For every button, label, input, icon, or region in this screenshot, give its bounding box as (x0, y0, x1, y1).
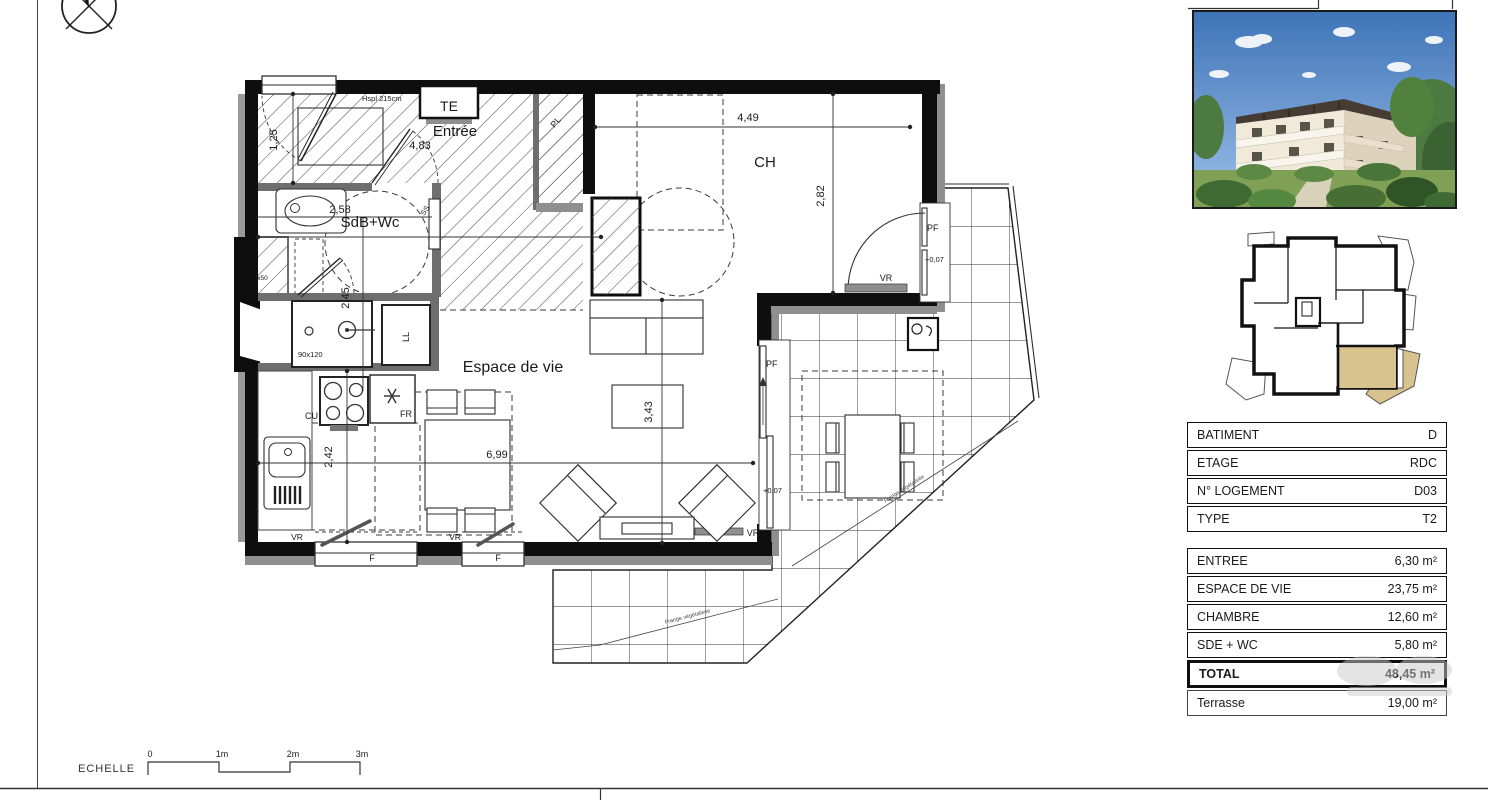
room-label-entrance: Entrée (433, 123, 477, 140)
dim-living-width: 6,99 (486, 449, 507, 461)
sink (264, 437, 310, 509)
dining-set (425, 390, 510, 532)
tap-fixture (908, 318, 938, 350)
pf-label-bedroom: PF (927, 223, 939, 233)
scale-tick-0: 0 (147, 749, 152, 759)
dim-bedroom-depth: 2,82 (815, 185, 827, 206)
vr-label-window1: VR (291, 532, 303, 542)
kitchen (258, 371, 415, 530)
table-row-terrace: Terrasse19,00 m² (1187, 690, 1447, 716)
vr-label-living: VR (747, 528, 760, 538)
dim-entrance-depth: 1,25 (268, 129, 280, 150)
scale-label: ECHELLE (78, 763, 135, 775)
shower-size-label: 90x120 (298, 350, 323, 359)
dim-bathroom-depth: 2,45 (340, 287, 352, 308)
dim-living-depth: 3,43 (643, 401, 655, 422)
scale-tick-1: 1m (216, 749, 229, 759)
dim-bedroom-width: 4,49 (737, 112, 758, 124)
room-label-bathroom: SdB+Wc (341, 214, 400, 231)
duct-size-label: 70x50 (250, 275, 268, 282)
cu-label: CU (305, 411, 318, 421)
cooktop (320, 377, 368, 431)
vr-label-bedroom: VR (880, 273, 893, 283)
dim-kitchen-depth: 2,42 (323, 446, 335, 467)
window-1 (315, 521, 417, 566)
fr-label: FR (400, 409, 412, 419)
bedroom-french-window (845, 203, 950, 302)
table-row: ESPACE DE VIE23,75 m² (1187, 576, 1447, 602)
table-row: SDE + WC5,80 m² (1187, 632, 1447, 658)
level-label-living: +0,07 (763, 486, 782, 495)
keyplan-unit-highlight (1338, 346, 1396, 388)
towel-radiator (429, 199, 440, 249)
scale-bar: ECHELLE 0 1m 2m 3m (78, 749, 368, 775)
plan-sheet: Frange végétalisée Frange végétalisée (0, 0, 1488, 800)
f-label-window1: F (369, 553, 375, 563)
table-row: ENTREE6,30 m² (1187, 548, 1447, 574)
room-label-living: Espace de vie (463, 359, 564, 376)
scale-tick-2: 2m (287, 749, 300, 759)
table-row: BATIMENTD (1187, 422, 1447, 448)
ll-label: LL (401, 332, 411, 342)
table-row: CHAMBRE12,60 m² (1187, 604, 1447, 630)
key-plan (1218, 228, 1440, 414)
building-photo (1192, 10, 1457, 209)
f-label-window2: F (495, 553, 501, 563)
scale-tick-3: 3m (356, 749, 369, 759)
dim-entrance-width: 4,83 (409, 140, 430, 152)
pf-label-living: PF (766, 359, 778, 369)
table-row: ETAGERDC (1187, 450, 1447, 476)
dim-bathroom-width: 2,58 (329, 204, 350, 216)
level-label-bedroom: +0,07 (925, 255, 944, 264)
unit-info-table: BATIMENTD ETAGERDC N° LOGEMENTD03 TYPET2… (1187, 422, 1447, 718)
table-row: N° LOGEMENTD03 (1187, 478, 1447, 504)
room-label-bedroom: CH (754, 154, 776, 171)
te-label: TE (440, 98, 458, 114)
north-arrow-icon (62, 0, 116, 33)
ceiling-height-label: Hspl 215cm (362, 94, 402, 103)
vr-label-window2: VR (449, 532, 461, 542)
table-row-total: TOTAL48,45 m² (1187, 660, 1447, 688)
table-row: TYPET2 (1187, 506, 1447, 532)
